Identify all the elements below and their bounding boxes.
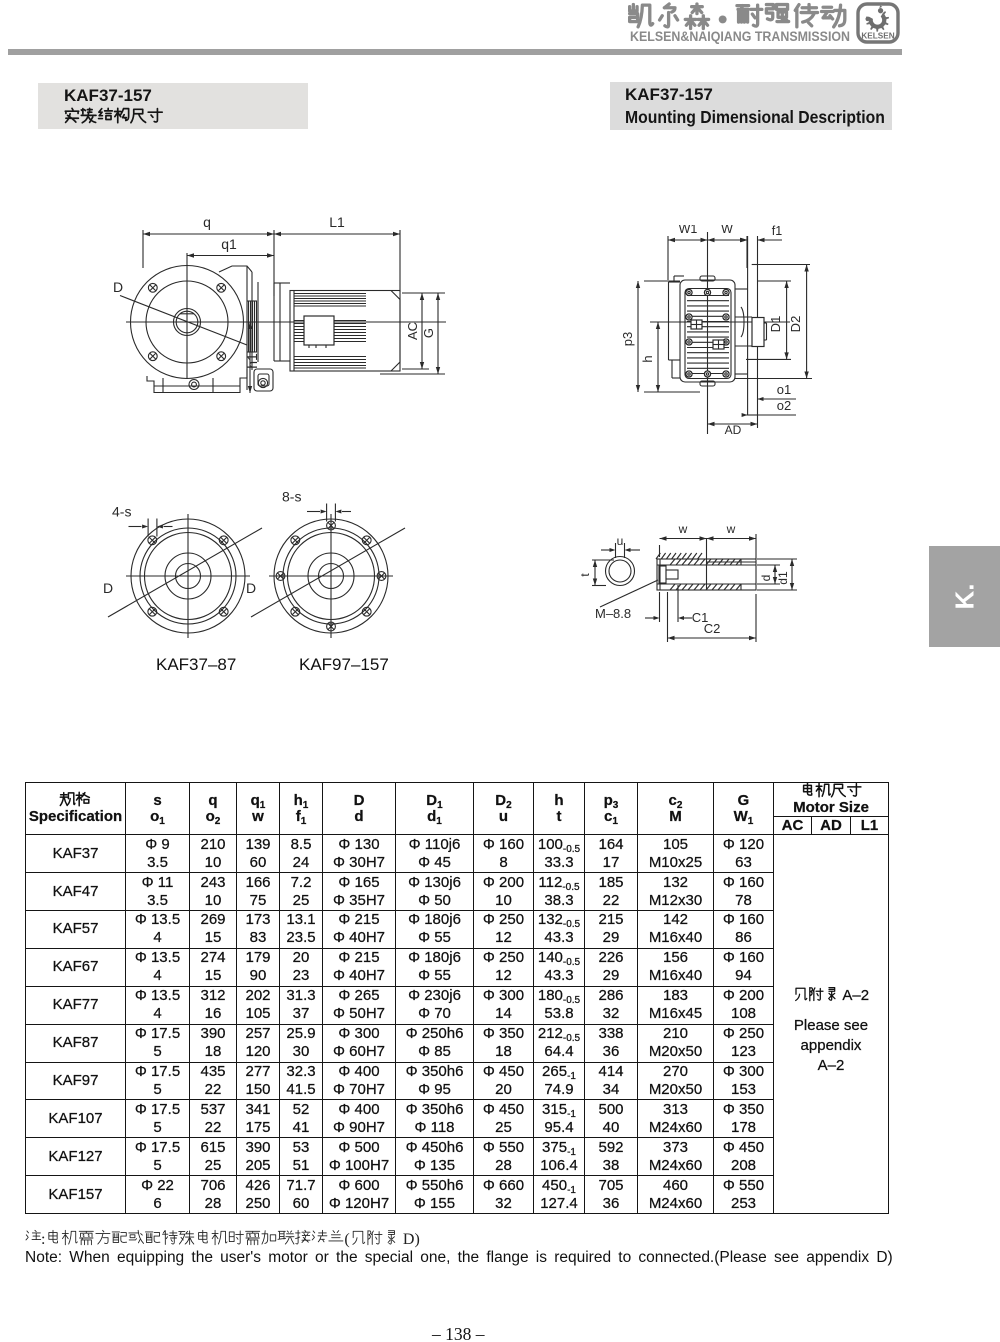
svg-text:u: u <box>617 534 624 548</box>
svg-text:f1: f1 <box>772 225 782 238</box>
svg-text:M–8.8: M–8.8 <box>595 606 631 621</box>
svg-text:w: w <box>678 522 688 536</box>
svg-text:AD: AD <box>725 423 742 437</box>
svg-text:KELSEN: KELSEN <box>861 32 894 41</box>
svg-text:AC: AC <box>405 322 420 340</box>
svg-text:p3: p3 <box>620 332 635 346</box>
svg-text:d: d <box>759 575 773 582</box>
svg-text:D: D <box>113 279 123 295</box>
svg-text:o2: o2 <box>777 398 791 413</box>
svg-text:D: D <box>246 580 256 596</box>
svg-text:d1: d1 <box>776 571 790 585</box>
svg-text:L1: L1 <box>329 214 345 230</box>
svg-text:4-s: 4-s <box>112 504 131 520</box>
svg-text:W: W <box>721 225 733 236</box>
svg-text:C2: C2 <box>704 621 721 636</box>
svg-text:D: D <box>103 580 113 596</box>
svg-text:h: h <box>640 355 655 362</box>
svg-text:o1: o1 <box>777 382 791 397</box>
svg-text:D1: D1 <box>768 316 783 333</box>
svg-text:W1: W1 <box>679 225 698 236</box>
svg-text:w: w <box>726 522 736 536</box>
svg-text:q1: q1 <box>221 236 237 252</box>
svg-text:8-s: 8-s <box>282 490 301 505</box>
svg-text:t: t <box>578 573 592 577</box>
svg-text:D2: D2 <box>788 316 803 333</box>
svg-text:h1: h1 <box>244 353 260 369</box>
svg-text:G: G <box>421 328 436 338</box>
svg-text:q: q <box>203 214 211 230</box>
